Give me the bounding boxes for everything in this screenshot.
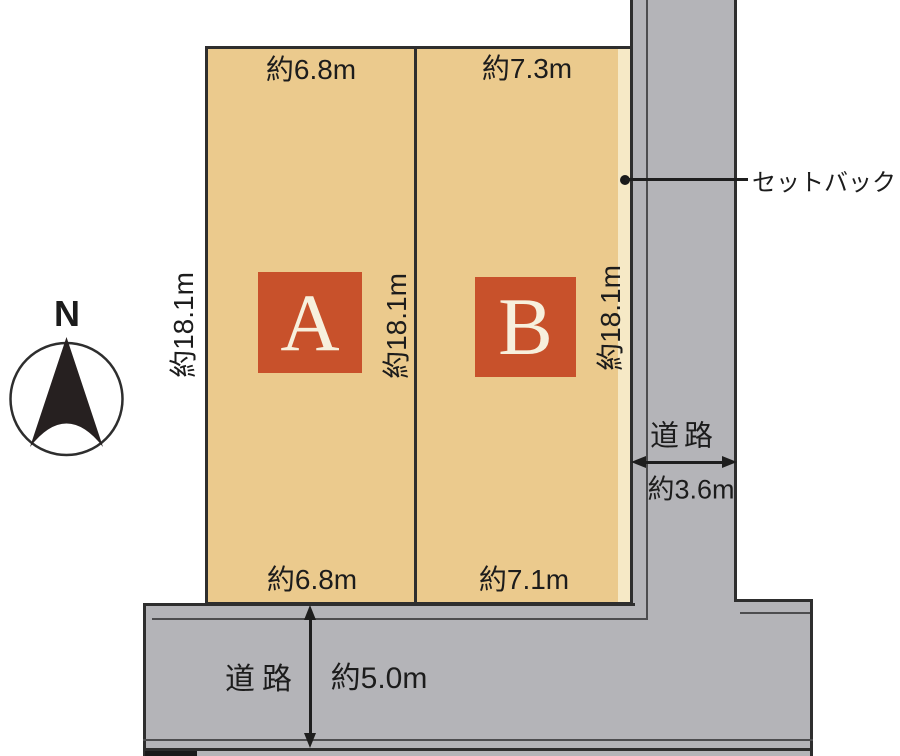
south-road-arrowhead-up (304, 605, 316, 620)
south-road-label: 道路 (225, 665, 299, 695)
north-compass: N (5, 284, 130, 462)
plot-b-right-depth-label: 約18.1m (597, 265, 625, 371)
south-road-width-label: 約5.0m (331, 664, 428, 694)
junction-gutter-line (740, 612, 813, 614)
road-junction-surface (737, 599, 813, 756)
plot-b-bottom-width-label: 約7.1m (479, 566, 569, 594)
plot-a-left-depth-label: 約18.1m (170, 272, 198, 378)
plot-a-top-width-label: 約6.8m (266, 56, 356, 84)
east-road-gutter-line (646, 0, 648, 620)
setback-label: セットバック (752, 163, 896, 198)
east-road-width-arrow (637, 461, 732, 464)
junction-top-edge-line (734, 599, 813, 602)
plot-a-right-depth-label: 約18.1m (383, 273, 411, 379)
plot-b-letter: B (498, 286, 553, 368)
plot-a-marker: A (258, 272, 362, 373)
south-road-gutter-line (152, 618, 648, 620)
south-road-width-arrow (309, 612, 312, 742)
south-road-bottom-mark (145, 751, 197, 756)
plot-a-bottom-width-label: 約6.8m (267, 566, 357, 594)
east-road-arrowhead-right (722, 456, 737, 468)
south-road-bottom-inner-line (143, 739, 813, 741)
south-road-arrowhead-down (304, 733, 316, 748)
site-plan-diagram: A B 約6.8m 約7.3m 約6.8m 約7.1m 約18.1m 約18.1… (0, 0, 900, 756)
north-letter: N (54, 293, 80, 334)
east-road-left-edge-line (630, 0, 633, 606)
plot-a-letter: A (280, 282, 339, 364)
east-road-width-label: 約3.6m (647, 477, 734, 504)
plot-b-marker: B (475, 277, 576, 377)
east-road-arrowhead-left (631, 456, 646, 468)
east-road-right-edge-line (734, 0, 737, 602)
plot-b-top-width-label: 約7.3m (482, 55, 572, 83)
south-road-top-edge-line (143, 603, 635, 606)
compass-needle-icon (30, 337, 103, 447)
east-road-label: 道路 (650, 423, 718, 452)
south-road-left-edge-line (143, 603, 146, 756)
south-road-bottom-edge-line (143, 748, 813, 751)
setback-leader-line (625, 178, 748, 181)
junction-right-edge-line (810, 599, 813, 756)
